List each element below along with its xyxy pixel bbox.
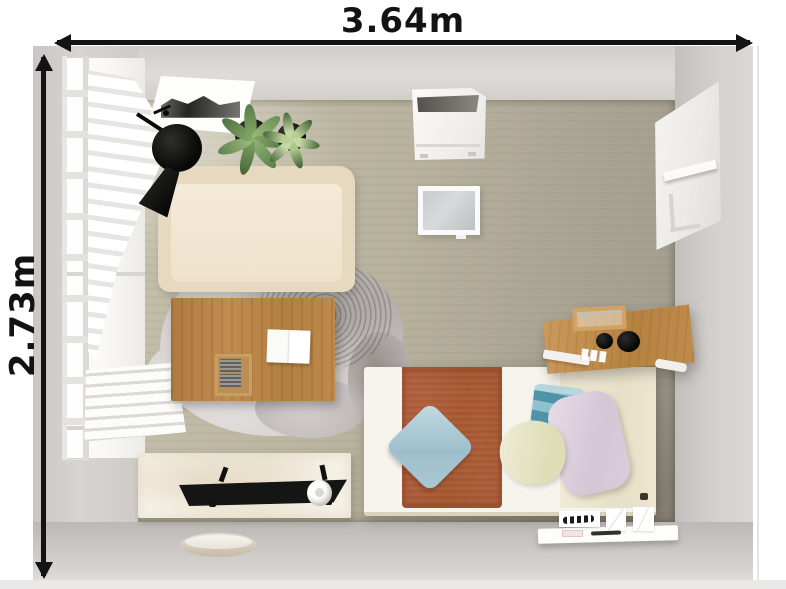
black-bowl-large (617, 331, 640, 352)
white-floating-shelf (538, 505, 683, 549)
cabinet-opening-shadow (417, 95, 479, 112)
open-notebook (266, 329, 310, 363)
window-frame-mullions (62, 56, 89, 460)
wooden-desk (171, 298, 335, 401)
bed-corner-detail (640, 493, 648, 500)
panel-rail (663, 160, 718, 182)
room-width-label: 3.64m (338, 1, 468, 41)
panel-bracket (669, 194, 676, 230)
cream-sofa (158, 166, 355, 292)
handwriting-scribble (563, 515, 594, 524)
note-card (559, 511, 600, 527)
chair-foot (209, 502, 216, 507)
white-wall-cabinet (412, 88, 486, 160)
desk-organizer-tray (215, 354, 252, 396)
page-right-edge-line (757, 46, 759, 580)
chair-leg (319, 465, 327, 481)
wooden-wall-shelf (543, 303, 695, 377)
small-notepad (562, 530, 583, 537)
small-white-frame (633, 507, 654, 531)
chair-leg (219, 467, 229, 483)
small-white-frame (606, 509, 626, 531)
round-floor-tray (180, 533, 257, 557)
tray-slot (220, 374, 241, 387)
cabinet-bottom-ledge (416, 144, 480, 147)
cabinet-foot (468, 152, 476, 156)
black-lamp-shade (152, 124, 202, 172)
mirror-glass (423, 191, 475, 230)
wall-mirror (418, 186, 480, 235)
sofa-seat-cushion (171, 184, 342, 282)
lamp-joint (163, 110, 169, 116)
room-height-label: 2.73m (3, 250, 43, 380)
page-bottom-strip (0, 580, 786, 589)
cabinet-foot (420, 154, 428, 158)
tray-slot (220, 359, 241, 372)
black-bowl-small (596, 333, 613, 349)
room-render (33, 46, 753, 580)
bed (364, 367, 656, 516)
small-picture-frame (572, 306, 626, 332)
floorplan-canvas: 3.64m 2.73m (0, 0, 786, 589)
white-mug (307, 480, 332, 506)
potted-plant-small (256, 101, 328, 173)
